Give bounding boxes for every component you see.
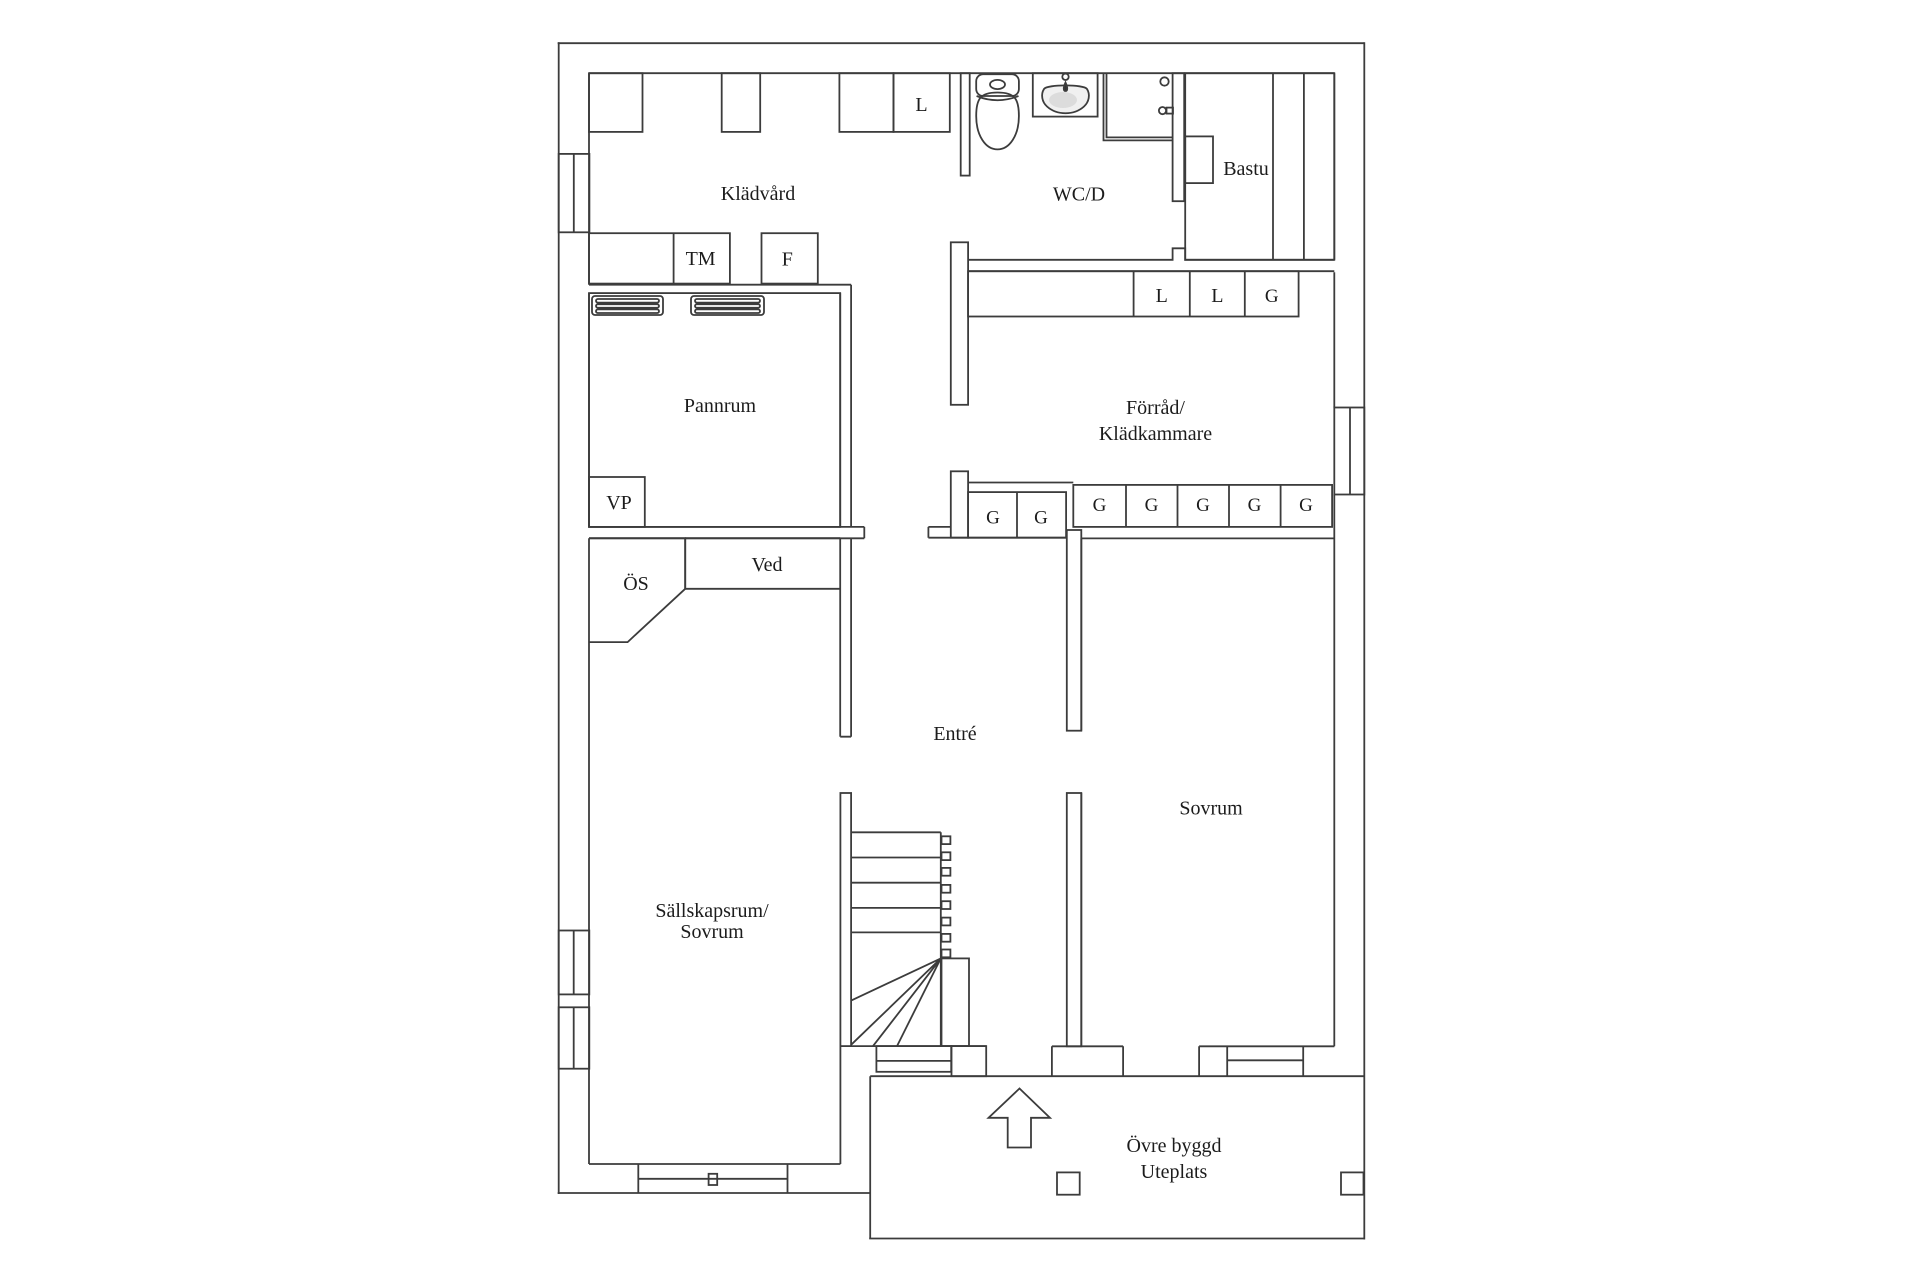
svg-text:Förråd/: Förråd/ (1126, 397, 1185, 419)
svg-text:G: G (1093, 495, 1107, 516)
svg-text:L: L (1156, 285, 1168, 307)
svg-text:G: G (986, 508, 1000, 529)
svg-text:WC/D: WC/D (1053, 184, 1105, 206)
svg-text:G: G (1145, 495, 1159, 516)
svg-text:Sällskapsrum/: Sällskapsrum/ (655, 900, 769, 922)
svg-text:Övre byggd: Övre byggd (1127, 1134, 1222, 1157)
svg-text:Klädvård: Klädvård (721, 183, 795, 205)
svg-text:L: L (915, 94, 927, 116)
svg-text:Sovrum: Sovrum (680, 921, 744, 943)
svg-text:ÖS: ÖS (623, 572, 649, 595)
svg-text:Pannrum: Pannrum (684, 395, 757, 417)
svg-text:TM: TM (686, 248, 716, 270)
svg-text:L: L (1211, 285, 1223, 307)
svg-text:Uteplats: Uteplats (1141, 1161, 1208, 1183)
svg-text:Entré: Entré (933, 723, 976, 745)
svg-text:Ved: Ved (751, 554, 782, 576)
svg-text:Bastu: Bastu (1223, 158, 1269, 180)
svg-text:G: G (1034, 508, 1048, 529)
svg-text:G: G (1248, 495, 1262, 516)
svg-text:F: F (782, 249, 793, 271)
svg-text:VP: VP (606, 492, 632, 514)
svg-text:Klädkammare: Klädkammare (1099, 423, 1212, 445)
svg-text:Sovrum: Sovrum (1179, 798, 1243, 820)
svg-text:G: G (1299, 495, 1313, 516)
svg-text:G: G (1265, 286, 1279, 307)
svg-text:G: G (1196, 495, 1210, 516)
